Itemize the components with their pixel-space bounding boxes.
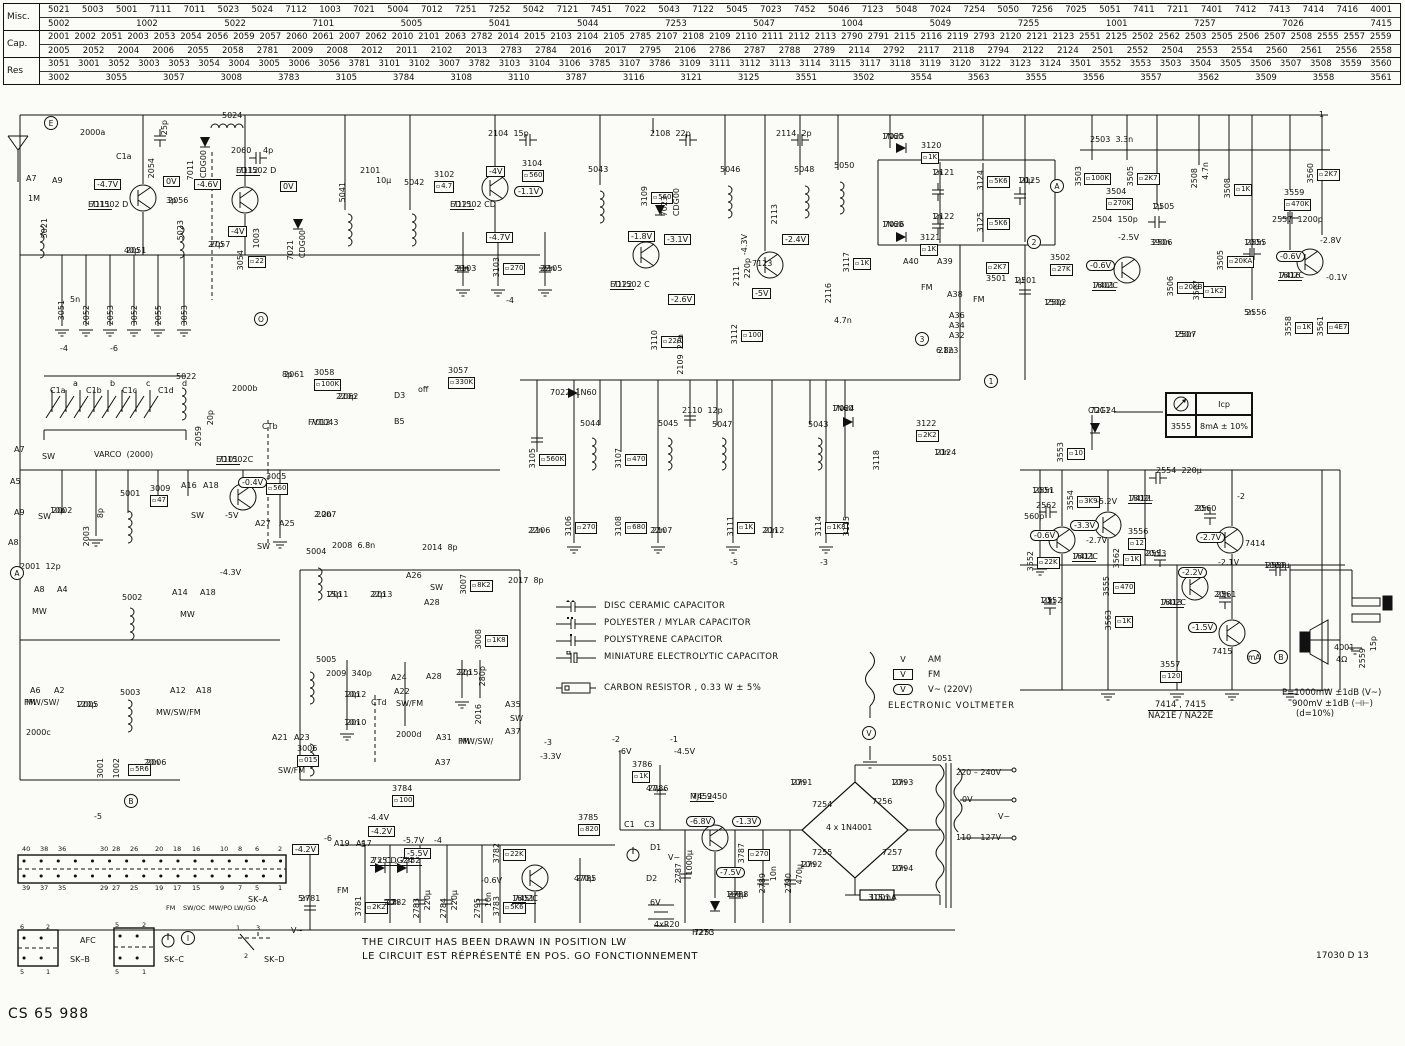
part-number: 2504 <box>1162 45 1184 58</box>
part-number: 3787 <box>565 72 587 85</box>
polystyrene-capacitor-icon <box>556 634 596 646</box>
part-number: 1003 <box>319 4 341 17</box>
component-label: -2.6V <box>668 294 695 305</box>
misc-line-2: 5002100250227101500550415044725350471004… <box>40 18 1400 31</box>
part-number: 3056 <box>318 58 340 71</box>
component-label: A34 <box>949 321 965 330</box>
part-number: 2503 <box>1185 31 1207 44</box>
part-number: 7024 <box>930 4 952 17</box>
component-label: 2054 <box>147 158 156 178</box>
part-number: 7414 <box>1303 4 1325 17</box>
part-number: 5003 <box>82 4 104 17</box>
part-number: 2787 <box>744 45 766 58</box>
part-number: 3001 <box>78 58 100 71</box>
component-label: 5 <box>115 921 119 930</box>
component-label: SW <box>430 583 443 592</box>
component-label: MW <box>180 610 195 619</box>
part-number: 3004 <box>228 58 250 71</box>
part-number: 3123 <box>1010 58 1032 71</box>
component-label: 1K <box>853 258 871 270</box>
component-label: 2 <box>1027 235 1041 249</box>
part-number: 5023 <box>218 4 240 17</box>
component-label: 2504 150p <box>1092 215 1138 224</box>
component-label: 2053 <box>106 305 115 325</box>
meter-ref: 3555 <box>1166 415 1196 437</box>
component-label: 3007 <box>459 574 468 594</box>
part-number: 2103 <box>550 31 572 44</box>
part-number: 7011 <box>184 4 206 17</box>
plate-number: 17030 D 13 <box>1316 951 1369 961</box>
component-label: 22 <box>248 256 266 268</box>
component-label: 2 <box>142 921 146 930</box>
schematic-drawing <box>0 0 1405 1046</box>
part-number: 2792 <box>883 45 905 58</box>
part-number: 2006 <box>152 45 174 58</box>
part-number: 3559 <box>1340 58 1362 71</box>
component-label: -4.7V <box>94 179 121 190</box>
part-number: 5051 <box>1099 4 1121 17</box>
part-number: 5024 <box>251 4 273 17</box>
part-number: 5044 <box>577 18 599 31</box>
component-label: -2.8V <box>1320 236 1341 245</box>
part-number: 2119 <box>947 31 969 44</box>
component-label: -5 <box>94 812 102 821</box>
part-number: 2009 <box>292 45 314 58</box>
component-label: 5K6 <box>987 176 1010 188</box>
part-number: 2015 <box>524 31 546 44</box>
component-label: 5024 <box>222 111 242 120</box>
part-number: 7251 <box>455 4 477 17</box>
part-number: 2013 <box>466 45 488 58</box>
part-number: 2052 <box>83 45 105 58</box>
legend-label: MINIATURE ELECTROLYTIC CAPACITOR <box>604 652 779 662</box>
component-label: -2 <box>612 735 620 744</box>
component-label: 2000d <box>396 730 421 739</box>
cap-line-2: 2005205220042006205520582781200920082012… <box>40 45 1400 58</box>
part-number: 2125 <box>1106 31 1128 44</box>
component-label: 0V <box>280 181 297 192</box>
component-label: 5044 <box>580 419 600 428</box>
component-label: 3107 <box>614 448 623 468</box>
component-label: -2.5V <box>1118 233 1139 242</box>
component-label: 2790 <box>784 873 793 893</box>
component-label: 3554 <box>1066 490 1075 510</box>
component-label: B <box>124 794 138 808</box>
component-label: 3114 <box>814 516 823 536</box>
component-label: 20 <box>155 845 163 854</box>
part-number: 2501 <box>1092 45 1114 58</box>
part-number: 5042 <box>523 4 545 17</box>
part-number: 2061 <box>312 31 334 44</box>
component-label: -5V <box>752 288 771 299</box>
part-number: 3505 <box>1220 58 1242 71</box>
component-label: 470 <box>1113 582 1135 594</box>
component-label: -3.3V <box>1070 520 1099 531</box>
component-label: 35 <box>58 884 66 893</box>
part-number: 3503 <box>1160 58 1182 71</box>
component-label: 29 <box>100 884 108 893</box>
component-label: 3058 <box>314 368 334 377</box>
part-number: 5001 <box>116 4 138 17</box>
misc-line-1: 5021500350017111701150235024711210037021… <box>40 4 1400 18</box>
part-number: 2102 <box>431 45 453 58</box>
part-number: 3557 <box>1140 72 1162 85</box>
part-number: 2791 <box>868 31 890 44</box>
component-label: 17 <box>173 884 181 893</box>
part-number: 3784 <box>393 72 415 85</box>
part-number: 3101 <box>379 58 401 71</box>
component-label: A9 <box>52 176 63 185</box>
part-number: 3055 <box>105 72 127 85</box>
component-label: B5 <box>394 417 405 426</box>
part-number: 3114 <box>799 58 821 71</box>
power-spec-line: (d=10%) <box>1282 709 1381 720</box>
disc-ceramic-capacitor-icon <box>556 600 596 612</box>
component-label: A22 <box>394 687 410 696</box>
component-label: 270 <box>503 263 525 275</box>
part-number: 2554 <box>1231 45 1253 58</box>
component-label: A12 <box>170 686 186 695</box>
part-number: 2551 <box>1079 31 1101 44</box>
component-label: -4 <box>60 344 68 353</box>
part-number: 2056 <box>207 31 229 44</box>
component-label: 560 <box>522 170 544 182</box>
component-label: 1K <box>920 244 938 256</box>
component-label: 3051 <box>57 300 66 320</box>
component-label: 120 <box>1160 671 1182 683</box>
part-number: 2054 <box>180 31 202 44</box>
component-label: 20p <box>206 410 215 425</box>
part-number: 2057 <box>260 31 282 44</box>
component-label: 6 <box>255 845 259 854</box>
part-number: 2053 <box>154 31 176 44</box>
component-label: 3112 <box>730 324 739 344</box>
component-label: 7256 <box>872 797 892 806</box>
component-label: A24 <box>391 673 407 682</box>
part-number: 2104 <box>577 31 599 44</box>
part-number: 2116 <box>920 31 942 44</box>
component-label: -4 <box>506 296 514 305</box>
component-label: 2 <box>278 845 282 854</box>
component-label: A21 <box>272 733 288 742</box>
output-transistor-types: NA21E / NA22E <box>1148 711 1213 721</box>
part-number: 2788 <box>779 45 801 58</box>
component-label: 3507 <box>1192 280 1201 300</box>
part-number: 2557 <box>1343 31 1365 44</box>
part-number: 2121 <box>1026 31 1048 44</box>
component-label: 9 <box>220 884 224 893</box>
component-label: -5 <box>730 558 738 567</box>
component-label: -6 <box>110 344 118 353</box>
part-number: 3125 <box>738 72 760 85</box>
part-number: 7123 <box>862 4 884 17</box>
component-label: 3785 <box>578 813 598 822</box>
part-number: 2558 <box>1370 45 1392 58</box>
component-label: C3 <box>644 820 655 829</box>
component-label: A7 <box>26 174 37 183</box>
component-label: A8 <box>8 538 19 547</box>
part-number: 7026 <box>1282 18 1304 31</box>
part-number: 3008 <box>220 72 242 85</box>
part-number: 2790 <box>841 31 863 44</box>
part-number: 5043 <box>658 4 680 17</box>
part-number: 3781 <box>348 58 370 71</box>
component-label: MW/PO <box>209 904 232 913</box>
component-label: 3111 <box>726 516 735 536</box>
part-number: 7416 <box>1336 4 1358 17</box>
component-label: B <box>1274 650 1288 664</box>
part-number: 5041 <box>489 18 511 31</box>
meter-value: 8mA ± 10% <box>1196 415 1252 437</box>
component-label: -4.2V <box>292 844 319 855</box>
part-number: 3002 <box>48 72 70 85</box>
component-label: 2116 <box>824 283 833 303</box>
component-label: 270K <box>1106 198 1133 210</box>
part-number: 4001 <box>1370 4 1392 17</box>
component-label: 5 <box>20 968 24 977</box>
part-number: 3107 <box>619 58 641 71</box>
part-number: 2111 <box>762 31 784 44</box>
component-label: 3504 <box>1106 187 1126 196</box>
part-number: 3120 <box>949 58 971 71</box>
part-number: 2110 <box>735 31 757 44</box>
component-label: 1 <box>984 374 998 388</box>
part-number: 2062 <box>365 31 387 44</box>
part-number: 2124 <box>1057 45 1079 58</box>
component-label: 1 <box>236 924 240 933</box>
part-number: 7415 <box>1370 18 1392 31</box>
component-label: -1.3V <box>732 816 761 827</box>
component-label: 2108 22p <box>650 129 691 138</box>
part-number: 7451 <box>591 4 613 17</box>
component-label: 5043 <box>808 420 828 429</box>
part-number: 2005 <box>48 45 70 58</box>
component-label: -2.4V <box>782 234 809 245</box>
note-french: LE CIRCUIT EST RÉPRÉSENTÉ EN POS. GO FON… <box>362 950 698 964</box>
part-number: 7257 <box>1194 18 1216 31</box>
component-label: 2009 340p <box>326 669 372 678</box>
part-number: 7101 <box>312 18 334 31</box>
component-label: 3560 <box>1306 163 1315 183</box>
part-number: 7254 <box>963 4 985 17</box>
part-number: 3051 <box>48 58 70 71</box>
component-label: SW <box>510 714 523 723</box>
component-label: -2 <box>1237 492 1245 501</box>
component-label: 40 <box>22 845 30 854</box>
component-label: -1.1V <box>514 186 543 197</box>
part-number: 2795 <box>640 45 662 58</box>
component-label: 8K2 <box>470 580 493 592</box>
component-label: 3558 <box>1284 316 1293 336</box>
part-number: 2112 <box>788 31 810 44</box>
component-label: 3781 <box>354 896 363 916</box>
component-label: 3053 <box>180 305 189 325</box>
component-label: 3115 <box>842 516 851 536</box>
component-label: 2000b <box>232 384 257 393</box>
component-label: -4.4V <box>368 813 389 822</box>
component-label: 3110 <box>650 330 659 350</box>
component-label: c <box>146 379 150 388</box>
part-number: 1002 <box>136 18 158 31</box>
parts-index-table: Misc. 5021500350017111701150235024711210… <box>3 3 1401 85</box>
component-label: -4.3V <box>740 234 749 255</box>
component-label: A38 <box>947 290 963 299</box>
component-label: 110 – 127V <box>956 833 1001 842</box>
component-label: 2060 <box>231 146 251 155</box>
component-label: 4p <box>263 146 273 155</box>
component-label: 2003 <box>82 526 91 546</box>
component-label: 22K <box>503 849 526 861</box>
component-label: 5041 <box>338 182 347 202</box>
component-label: 8p <box>96 508 105 518</box>
part-number: 3113 <box>769 58 791 71</box>
component-label: 2789 <box>758 873 767 893</box>
component-label: 3106 <box>564 516 573 536</box>
component-label: 3121 <box>920 233 940 242</box>
component-label: 27 <box>112 884 120 893</box>
res-line-2: 3002305530573008378331053784310831103787… <box>40 72 1400 85</box>
component-label: 37 <box>40 884 48 893</box>
part-number: 3507 <box>1280 58 1302 71</box>
part-number: 2502 <box>1132 31 1154 44</box>
component-label: 5045 <box>658 419 678 428</box>
row-header-cap: Cap. <box>4 31 40 57</box>
part-number: 2789 <box>814 45 836 58</box>
part-number: 5047 <box>753 18 775 31</box>
part-number: 3053 <box>168 58 190 71</box>
component-label: SW <box>42 452 55 461</box>
part-number: 3562 <box>1198 72 1220 85</box>
part-number: 5002 <box>48 18 70 31</box>
part-number: 2063 <box>445 31 467 44</box>
component-label: 2559 <box>1358 648 1367 668</box>
component-label: 2052 <box>82 305 91 325</box>
part-number: 2552 <box>1127 45 1149 58</box>
part-number: 3506 <box>1250 58 1272 71</box>
component-label: FM <box>337 886 349 895</box>
part-number: 5050 <box>997 4 1019 17</box>
note-english: THE CIRCUIT HAS BEEN DRAWN IN POSITION L… <box>362 936 698 950</box>
component-label: 3052 <box>130 305 139 325</box>
component-label: A31 <box>436 733 452 742</box>
component-label: C1b <box>86 386 102 395</box>
component-label: SK–B <box>70 955 90 964</box>
component-label: A7 <box>14 445 25 454</box>
drawing-position-notes: THE CIRCUIT HAS BEEN DRAWN IN POSITION L… <box>362 936 698 964</box>
component-label: 3120 <box>921 141 941 150</box>
component-label: A36 <box>949 311 965 320</box>
polyester-capacitor-icon <box>556 617 596 629</box>
component-label: -0.6V <box>1086 260 1115 271</box>
component-label: 1 <box>278 884 282 893</box>
part-number: 3104 <box>529 58 551 71</box>
part-number: 2794 <box>988 45 1010 58</box>
component-label: 5046 <box>720 165 740 174</box>
part-number: 5005 <box>401 18 423 31</box>
part-number: 3109 <box>679 58 701 71</box>
component-label: 3501 <box>986 274 1006 283</box>
component-label: 270 <box>575 522 597 534</box>
component-label: -2.7V <box>1196 532 1225 543</box>
part-number: 7021 <box>353 4 375 17</box>
part-number: 2107 <box>656 31 678 44</box>
component-label: 820 <box>578 824 600 836</box>
component-label: 5001 <box>120 489 140 498</box>
circuit-schematic-sheet: E2000aC1a25p20547011CDG00502420604p-4.7V… <box>0 0 1405 1046</box>
component-label: 4 x 1N4001 <box>826 823 872 832</box>
component-label: 3102 <box>434 170 454 179</box>
component-label: 3054 <box>236 250 245 270</box>
component-label: 3782 <box>492 843 501 863</box>
component-label: A16 <box>181 481 197 490</box>
cap-line-1: 2001200220512003205320542056205920572060… <box>40 31 1400 45</box>
component-label: MW/SW/FM <box>156 708 201 717</box>
component-label: A18 <box>203 481 219 490</box>
component-label: -1.5V <box>1188 622 1217 633</box>
component-label: 220 – 240V <box>956 768 1001 777</box>
component-label: 5022 <box>176 372 196 381</box>
component-label: 2104 15p <box>488 129 529 138</box>
component-label: 2K7 <box>1137 173 1160 185</box>
part-number: 2115 <box>894 31 916 44</box>
component-label: 3 <box>256 924 260 933</box>
legend-item: DISC CERAMIC CAPACITOR <box>556 597 779 614</box>
component-label: 2016 <box>474 704 483 724</box>
voltmeter-label: FM <box>928 670 940 680</box>
part-number: 2562 <box>1158 31 1180 44</box>
part-number: 3124 <box>1040 58 1062 71</box>
component-label: 330K <box>448 377 475 389</box>
component-label: 5021 <box>40 218 49 238</box>
component-label: 2783 <box>412 898 421 918</box>
component-label: 2017 8p <box>508 576 544 585</box>
component-label: 2784 <box>439 898 448 918</box>
component-label: A23 <box>294 733 310 742</box>
component-label: 220p <box>743 258 752 278</box>
component-label: 3559 <box>1284 188 1304 197</box>
part-number: 5004 <box>387 4 409 17</box>
component-label: A39 <box>937 257 953 266</box>
component-label: 2557 1200p <box>1272 215 1323 224</box>
component-label: 2113 <box>770 204 779 224</box>
part-number: 5049 <box>930 18 952 31</box>
part-number: 2508 <box>1291 31 1313 44</box>
part-number: 3102 <box>409 58 431 71</box>
component-label: A6 <box>30 686 41 695</box>
part-number: 7411 <box>1133 4 1155 17</box>
component-label: A19 <box>334 839 350 848</box>
component-label: -6 <box>324 834 332 843</box>
component-label: A <box>10 566 24 580</box>
part-number: 3783 <box>278 72 300 85</box>
component-label: 3103 <box>492 257 501 277</box>
component-label: 470 <box>625 454 647 466</box>
component-label: 3005 <box>266 472 286 481</box>
part-number: 2017 <box>605 45 627 58</box>
part-number: 2109 <box>709 31 731 44</box>
meter-quantity: Icp <box>1196 393 1252 415</box>
legend-label: DISC CERAMIC CAPACITOR <box>604 601 725 611</box>
component-label: 3057 <box>448 366 468 375</box>
component-label: V~ <box>291 926 303 935</box>
part-number: 2011 <box>396 45 418 58</box>
component-label: 7414 <box>1245 539 1265 548</box>
component-label: 2554 220µ <box>1156 466 1202 475</box>
component-label: 3562 <box>1112 548 1121 568</box>
part-number: 7255 <box>1018 18 1040 31</box>
component-label: 280p <box>478 666 487 686</box>
part-number: 2786 <box>709 45 731 58</box>
